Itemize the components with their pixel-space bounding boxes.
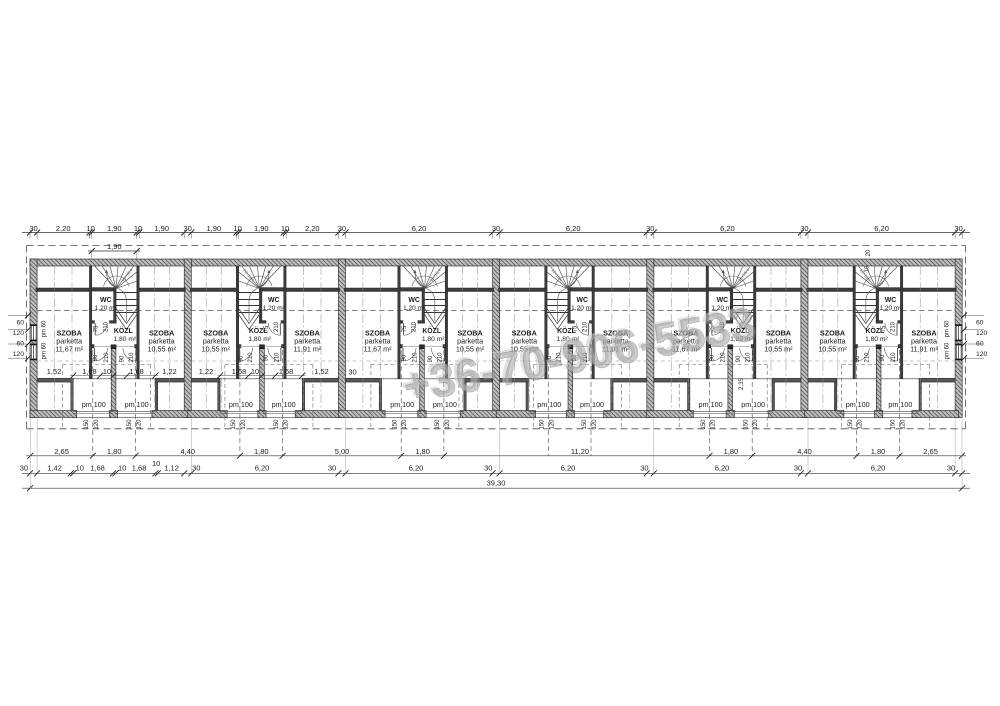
svg-text:6,20: 6,20: [874, 224, 889, 233]
svg-text:150: 150: [392, 419, 398, 430]
svg-text:2,20: 2,20: [305, 224, 320, 233]
svg-text:210: 210: [274, 321, 280, 332]
svg-text:210: 210: [129, 352, 135, 363]
svg-text:1,80 m²: 1,80 m²: [248, 336, 271, 343]
svg-text:120: 120: [711, 419, 717, 430]
svg-text:150: 150: [231, 419, 237, 430]
svg-text:120: 120: [753, 419, 759, 430]
svg-text:10,55 m²: 10,55 m²: [148, 345, 177, 354]
svg-text:11,91 m²: 11,91 m²: [910, 345, 938, 354]
svg-text:1,80: 1,80: [871, 447, 886, 456]
svg-text:10: 10: [152, 459, 160, 468]
svg-text:KÖZL: KÖZL: [249, 326, 268, 335]
svg-text:10: 10: [233, 224, 241, 233]
svg-text:1,22: 1,22: [162, 367, 176, 376]
svg-text:pm 60: pm 60: [945, 320, 951, 337]
svg-text:120: 120: [402, 419, 408, 430]
svg-text:1,90: 1,90: [206, 224, 221, 233]
svg-text:150: 150: [435, 419, 441, 430]
svg-text:1,90: 1,90: [107, 224, 122, 233]
svg-text:1,80 m²: 1,80 m²: [865, 336, 888, 343]
svg-text:1,20 m²: 1,20 m²: [95, 305, 118, 312]
svg-text:4,40: 4,40: [797, 447, 812, 456]
svg-text:210: 210: [412, 321, 418, 332]
svg-text:10,55 m²: 10,55 m²: [764, 345, 793, 354]
svg-text:1,22: 1,22: [199, 367, 213, 376]
svg-text:1,20 m²: 1,20 m²: [879, 305, 902, 312]
svg-text:90: 90: [264, 354, 270, 361]
svg-text:2,20: 2,20: [56, 224, 71, 233]
svg-text:120: 120: [976, 351, 988, 358]
svg-text:10: 10: [134, 224, 142, 233]
svg-text:1,68: 1,68: [82, 367, 96, 376]
svg-text:90: 90: [855, 355, 861, 362]
svg-text:2,65: 2,65: [54, 447, 69, 456]
svg-text:11,67 m²: 11,67 m²: [364, 345, 392, 354]
svg-text:120: 120: [858, 419, 864, 430]
svg-text:210: 210: [104, 352, 110, 363]
svg-text:10: 10: [865, 265, 871, 272]
svg-text:10: 10: [103, 367, 111, 376]
svg-text:pm 100: pm 100: [699, 400, 723, 409]
svg-text:1,20 m²: 1,20 m²: [403, 305, 426, 312]
svg-text:1,80 m²: 1,80 m²: [422, 336, 445, 343]
svg-text:150: 150: [84, 419, 90, 430]
svg-text:1,68: 1,68: [232, 367, 246, 376]
svg-text:150: 150: [127, 419, 133, 430]
svg-text:1,42: 1,42: [47, 463, 62, 472]
svg-text:pm 100: pm 100: [888, 400, 912, 409]
svg-text:150: 150: [848, 419, 854, 430]
svg-text:10: 10: [251, 367, 259, 376]
svg-text:1,80: 1,80: [254, 447, 269, 456]
svg-text:2,35: 2,35: [738, 377, 745, 390]
svg-text:10: 10: [76, 463, 84, 472]
svg-text:1,68: 1,68: [129, 367, 143, 376]
svg-text:120: 120: [592, 419, 598, 430]
svg-text:1,80: 1,80: [107, 447, 122, 456]
svg-text:6,20: 6,20: [561, 463, 576, 472]
svg-text:30: 30: [184, 224, 192, 233]
svg-text:1,20 m²: 1,20 m²: [571, 305, 594, 312]
svg-text:120: 120: [549, 419, 555, 430]
svg-text:30: 30: [192, 463, 200, 472]
svg-text:30: 30: [492, 224, 500, 233]
svg-text:120: 120: [13, 351, 25, 358]
svg-text:75: 75: [94, 325, 100, 332]
svg-text:120: 120: [976, 330, 988, 337]
svg-text:20: 20: [866, 249, 872, 256]
svg-text:210: 210: [891, 352, 897, 363]
svg-text:1,90: 1,90: [107, 242, 122, 251]
svg-text:30: 30: [29, 224, 37, 233]
svg-text:1,68: 1,68: [132, 463, 147, 472]
svg-text:60: 60: [16, 320, 24, 327]
svg-text:pm 100: pm 100: [741, 400, 765, 409]
svg-text:120: 120: [284, 419, 290, 430]
svg-text:210: 210: [746, 352, 752, 363]
svg-text:10,55 m²: 10,55 m²: [202, 345, 231, 354]
svg-text:6,20: 6,20: [715, 463, 730, 472]
svg-text:150: 150: [540, 419, 546, 430]
svg-text:pm 60: pm 60: [945, 342, 951, 359]
svg-text:2,65: 2,65: [923, 447, 938, 456]
svg-text:1,52: 1,52: [314, 367, 328, 376]
svg-text:30: 30: [338, 224, 346, 233]
svg-text:WC: WC: [576, 297, 588, 304]
svg-text:30: 30: [794, 463, 802, 472]
svg-text:1,80: 1,80: [724, 447, 739, 456]
svg-text:90: 90: [120, 355, 126, 362]
svg-text:120: 120: [445, 419, 451, 430]
svg-text:KÖZL: KÖZL: [114, 326, 133, 335]
svg-text:KÖZL: KÖZL: [422, 326, 441, 335]
svg-text:10: 10: [281, 224, 289, 233]
svg-text:6,20: 6,20: [409, 463, 424, 472]
svg-text:39,30: 39,30: [487, 479, 506, 488]
svg-text:90: 90: [736, 355, 742, 362]
svg-text:pm 100: pm 100: [846, 400, 870, 409]
svg-text:150: 150: [701, 419, 707, 430]
svg-text:pm 100: pm 100: [272, 400, 296, 409]
svg-text:6,20: 6,20: [871, 463, 886, 472]
svg-text:210: 210: [891, 321, 897, 332]
svg-text:pm 100: pm 100: [125, 400, 149, 409]
svg-text:1,80 m²: 1,80 m²: [113, 336, 136, 343]
svg-text:1,90: 1,90: [254, 224, 269, 233]
svg-text:11,20: 11,20: [571, 447, 589, 456]
svg-text:WC: WC: [268, 297, 280, 304]
svg-text:210: 210: [103, 321, 109, 332]
svg-text:30: 30: [484, 463, 492, 472]
svg-text:1,80: 1,80: [415, 447, 430, 456]
svg-text:10: 10: [86, 224, 94, 233]
svg-text:5,00: 5,00: [335, 447, 350, 456]
svg-text:30: 30: [646, 224, 654, 233]
svg-text:150: 150: [744, 419, 750, 430]
svg-text:120: 120: [137, 419, 143, 430]
svg-text:pm 60: pm 60: [42, 342, 48, 359]
svg-text:1,68: 1,68: [90, 463, 105, 472]
svg-text:6,20: 6,20: [412, 224, 427, 233]
svg-text:pm 100: pm 100: [537, 400, 561, 409]
svg-text:1,12: 1,12: [164, 463, 179, 472]
svg-text:90: 90: [239, 355, 245, 362]
svg-text:10,55 m²: 10,55 m²: [818, 345, 847, 354]
svg-text:WC: WC: [408, 297, 420, 304]
svg-text:150: 150: [891, 419, 897, 430]
svg-text:1,20 m²: 1,20 m²: [263, 305, 286, 312]
svg-text:11,91 m²: 11,91 m²: [293, 345, 321, 354]
svg-text:WC: WC: [885, 297, 897, 304]
svg-text:1,90: 1,90: [154, 224, 169, 233]
svg-text:30: 30: [800, 224, 808, 233]
svg-text:6,20: 6,20: [720, 224, 735, 233]
svg-text:120: 120: [13, 330, 25, 337]
svg-text:30: 30: [640, 463, 648, 472]
svg-text:90: 90: [93, 354, 99, 361]
svg-text:75: 75: [402, 325, 408, 332]
svg-text:120: 120: [900, 419, 906, 430]
svg-text:KÖZL: KÖZL: [866, 326, 885, 335]
svg-text:120: 120: [241, 419, 247, 430]
svg-text:150: 150: [274, 419, 280, 430]
svg-text:120: 120: [94, 419, 100, 430]
svg-text:pm 60: pm 60: [42, 320, 48, 337]
svg-text:10: 10: [118, 463, 126, 472]
svg-text:30: 30: [20, 463, 28, 472]
svg-text:150: 150: [582, 419, 588, 430]
svg-text:60: 60: [976, 320, 984, 327]
svg-text:11,67 m²: 11,67 m²: [55, 345, 83, 354]
svg-text:30: 30: [348, 367, 356, 376]
svg-text:6,20: 6,20: [255, 463, 270, 472]
svg-text:1,68: 1,68: [279, 367, 293, 376]
svg-text:pm 100: pm 100: [580, 400, 604, 409]
svg-text:WC: WC: [100, 297, 112, 304]
svg-text:pm 100: pm 100: [229, 400, 253, 409]
svg-text:4,40: 4,40: [180, 447, 195, 456]
svg-text:210: 210: [865, 352, 871, 363]
svg-text:pm 100: pm 100: [82, 400, 106, 409]
svg-text:30: 30: [947, 463, 955, 472]
svg-text:90: 90: [880, 354, 886, 361]
svg-text:30: 30: [954, 224, 962, 233]
svg-text:210: 210: [248, 352, 254, 363]
svg-text:1,52: 1,52: [47, 367, 61, 376]
svg-text:30: 30: [328, 463, 336, 472]
svg-text:6,20: 6,20: [566, 224, 581, 233]
svg-text:210: 210: [275, 352, 281, 363]
